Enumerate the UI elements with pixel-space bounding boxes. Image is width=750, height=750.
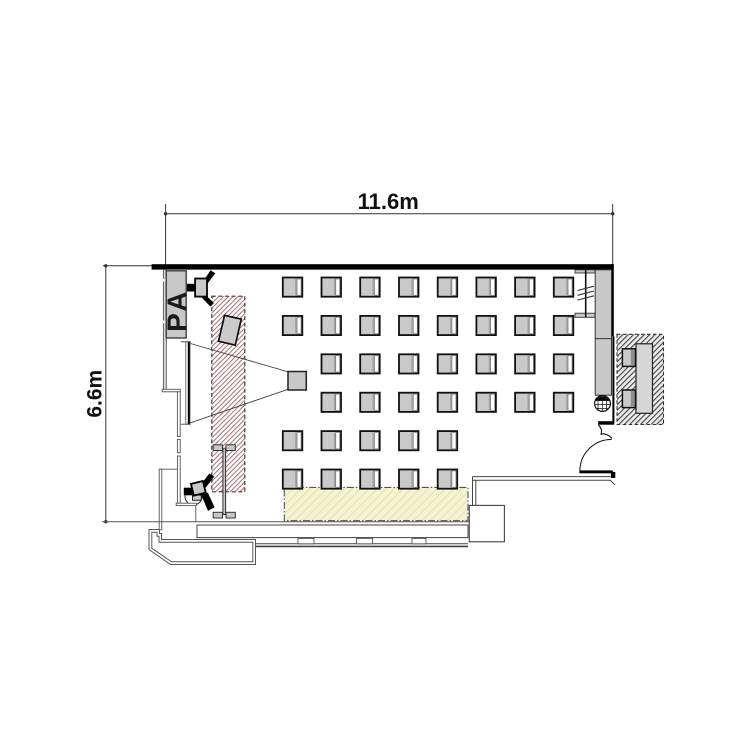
svg-text:PA: PA — [162, 288, 193, 332]
svg-text:6.6m: 6.6m — [84, 370, 107, 418]
svg-text:11.6m: 11.6m — [358, 189, 419, 214]
